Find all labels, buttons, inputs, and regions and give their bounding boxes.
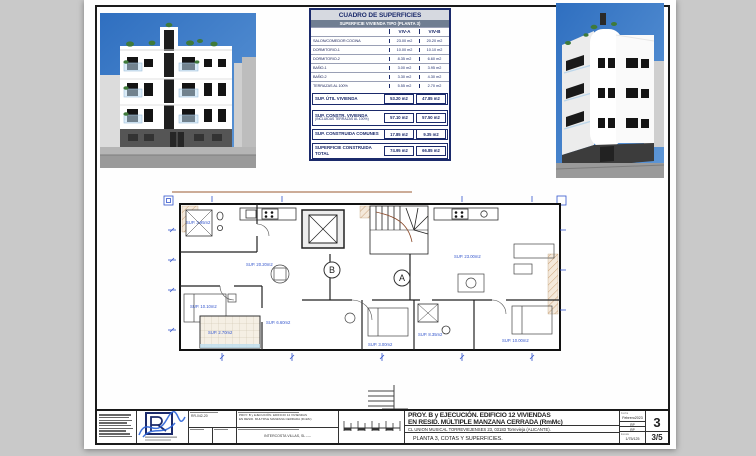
room-label-terraza-b: SUP. 2.70m2: [208, 330, 233, 335]
project-title: PROY. B y EJECUCIÓN. EDIFICIO 12 VIVIEND…: [405, 411, 619, 426]
title-block: RR-042-20 PROY. B y EJECUCIÓN. EDIFICIO …: [95, 409, 670, 445]
building-render-front: [100, 13, 256, 168]
title-block-main: PROY. B y EJECUCIÓN. EDIFICIO 12 VIVIEND…: [405, 411, 620, 443]
table-row: TERRAZAS AL 100% 5.55 m2 2.70 m2: [311, 81, 449, 90]
col-header-viv-b: VIV-B: [419, 29, 449, 34]
room-label-living-b: SUP. 20.20m2: [246, 262, 273, 267]
table-row: DORMITORIO-1 10.00 m2 10.10 m2: [311, 45, 449, 54]
drawing-sheet: CUADRO DE SUPERFICIES SUPERFICIE VIVIEND…: [84, 0, 676, 449]
page-number: 3/5: [646, 432, 668, 443]
date-field: Fecha Febrero2023: [620, 411, 645, 422]
legal-text-block: [97, 411, 137, 443]
graphic-scale-bar: [339, 411, 405, 443]
col-header-viv-a: VIV-A: [389, 29, 419, 34]
table-header-row: VIV-A VIV-B: [311, 27, 449, 36]
drawing-number: 3: [646, 411, 668, 432]
summary-row-total: SUPERFICIE CONSTRUIDA TOTAL 74.95 m2 66.…: [312, 143, 448, 159]
summary-row-util: SUP. ÚTIL VIVIENDA 53.20 m2 47.85 m2: [312, 93, 448, 105]
unit-b-marker: B: [329, 265, 335, 275]
reference-block: RR-042-20 PROY. B y EJECUCIÓN. EDIFICIO …: [189, 411, 339, 443]
project-description-small: PROY. B y EJECUCIÓN. EDIFICIO 12 VIVIEND…: [237, 411, 338, 427]
unit-a-marker: A: [399, 273, 405, 283]
blank-field: [213, 428, 237, 444]
room-label-living-a: SUP. 23.00m2: [454, 254, 481, 259]
elevator-shaft: [302, 210, 344, 248]
room-label-dorm2-a: SUP. 8.35m2: [418, 332, 443, 337]
table-row: BAÑO-2 3.30 m2 4.30 m2: [311, 72, 449, 81]
promoter-field: INTERCOSTA VILLAS, SL ----: [237, 428, 338, 444]
table-row: DORMITORIO-2 8.35 m2 6.60 m2: [311, 54, 449, 63]
table-title: CUADRO DE SUPERFICIES: [311, 10, 449, 20]
architect-logo: [137, 411, 189, 443]
room-label-dorm1-b: SUP. 10.10m2: [190, 304, 217, 309]
floor-plan: B A SUP. 3.95m2 SUP. 10.10m2 SUP. 2.70m2…: [162, 190, 568, 365]
table-row: BAÑO-1 3.00 m2 3.95 m2: [311, 63, 449, 72]
project-ref: RR-042-20: [189, 411, 237, 427]
room-label-dorm2-b: SUP. 6.60m2: [266, 320, 291, 325]
summary-row-comunes: SUP. CONSTRUIDA COMUNES 17.85 m2 9.35 m2: [312, 129, 448, 140]
blank-field: [189, 428, 213, 444]
scale-field: Escala 1/75/125: [620, 432, 645, 443]
table-row: SALON/COMEDOR COCINA 23.00 m2 20.20 m2: [311, 36, 449, 45]
staircase: [370, 206, 428, 254]
project-address: CL UNION MUSICAL TORREVIEJENSES 23, 0318…: [405, 426, 619, 433]
building-render-corner: [556, 3, 664, 178]
room-label-bano1-a: SUP. 3.00m2: [368, 342, 393, 347]
title-block-fields: Fecha Febrero2023 RP RP Escala 1/75/125 …: [620, 411, 668, 443]
sheet-name: PLANTA 3, COTAS Y SUPERFICIES.: [405, 433, 619, 443]
summary-row-constr: SUP. CONSTR. VIVIENDA(INCLUIDAS TERRAZAS…: [312, 110, 448, 126]
room-label-dorm1-a: SUP. 10.00m2: [502, 338, 529, 343]
room-label-bano1-b: SUP. 3.95m2: [186, 220, 211, 225]
surfaces-table: CUADRO DE SUPERFICIES SUPERFICIE VIVIEND…: [309, 8, 451, 161]
table-subtitle: SUPERFICIE VIVIENDA TIPO (PLANTA 3): [311, 20, 449, 27]
